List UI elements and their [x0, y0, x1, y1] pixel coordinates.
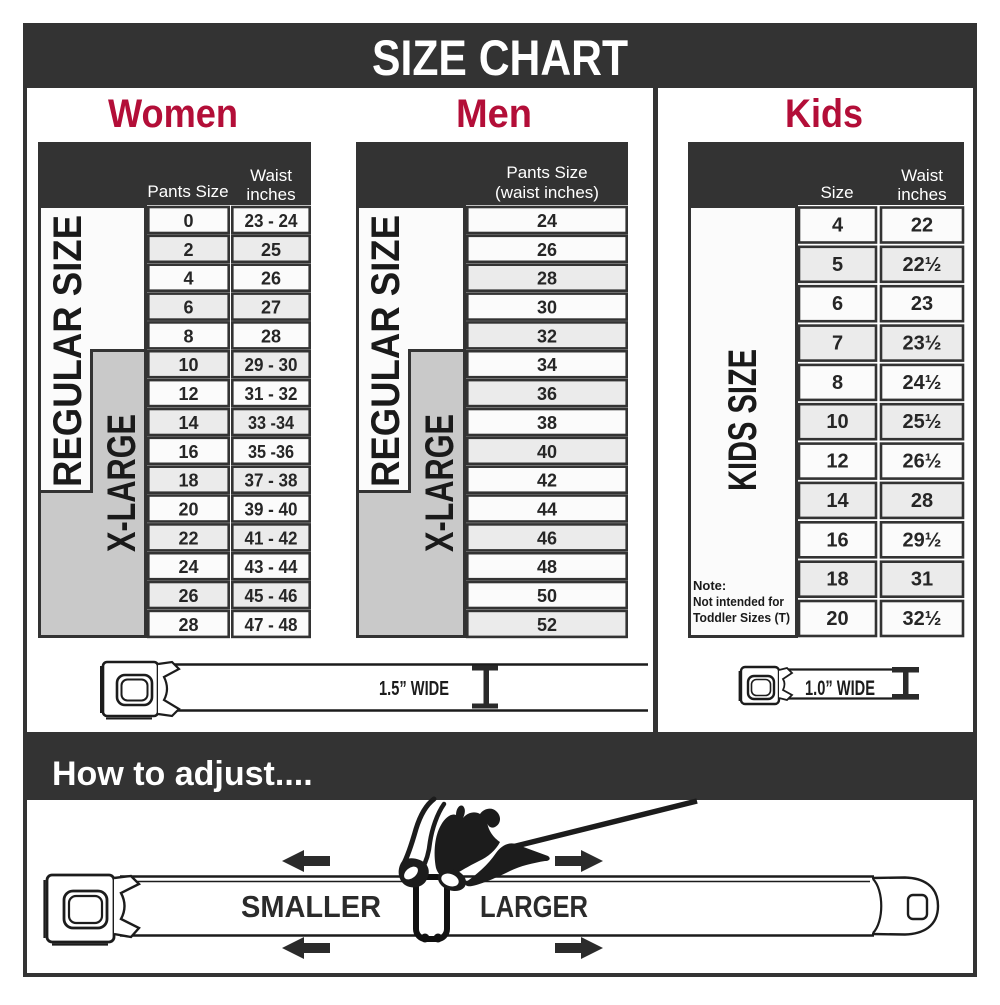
svg-text:5: 5 [832, 254, 843, 276]
svg-text:4: 4 [183, 269, 193, 289]
svg-text:42: 42 [537, 471, 557, 491]
svg-text:35 -36: 35 -36 [248, 442, 294, 462]
svg-text:16: 16 [826, 529, 848, 551]
svg-text:30: 30 [537, 298, 557, 318]
svg-text:44: 44 [537, 500, 557, 520]
svg-text:34: 34 [537, 355, 557, 375]
svg-text:10: 10 [178, 355, 198, 375]
svg-text:26: 26 [261, 269, 281, 289]
svg-text:Toddler Sizes (T): Toddler Sizes (T) [693, 610, 790, 625]
svg-text:Women: Women [108, 92, 238, 136]
svg-text:31 - 32: 31 - 32 [245, 384, 298, 404]
svg-text:1.5” WIDE: 1.5” WIDE [379, 678, 449, 700]
svg-text:22: 22 [911, 215, 933, 237]
svg-text:38: 38 [537, 413, 557, 433]
svg-text:1.0” WIDE: 1.0” WIDE [805, 677, 875, 700]
svg-text:6: 6 [183, 298, 193, 318]
svg-text:20: 20 [826, 608, 848, 630]
svg-text:23½: 23½ [903, 333, 942, 355]
svg-text:REGULAR SIZE: REGULAR SIZE [364, 215, 408, 487]
svg-text:48: 48 [537, 557, 557, 577]
svg-text:Pants Size: Pants Size [147, 182, 228, 201]
svg-text:8: 8 [183, 326, 193, 346]
svg-text:24: 24 [537, 211, 557, 231]
svg-text:SMALLER: SMALLER [241, 889, 381, 924]
svg-text:24: 24 [178, 557, 198, 577]
svg-text:47 - 48: 47 - 48 [245, 615, 298, 635]
svg-text:22: 22 [178, 528, 198, 548]
svg-text:How to adjust....: How to adjust.... [52, 755, 313, 793]
svg-text:8: 8 [832, 372, 843, 394]
svg-text:X-LARGE: X-LARGE [100, 414, 144, 552]
svg-text:20: 20 [178, 500, 198, 520]
svg-text:36: 36 [537, 384, 557, 404]
svg-text:14: 14 [178, 413, 198, 433]
svg-text:SIZE CHART: SIZE CHART [372, 30, 628, 86]
svg-text:18: 18 [826, 569, 848, 591]
svg-text:24½: 24½ [903, 372, 942, 394]
svg-text:50: 50 [537, 586, 557, 606]
svg-text:2: 2 [183, 240, 193, 260]
svg-text:26: 26 [537, 240, 557, 260]
svg-text:14: 14 [826, 490, 849, 512]
svg-text:27: 27 [261, 298, 281, 318]
svg-text:28: 28 [911, 490, 933, 512]
svg-text:Size: Size [820, 183, 853, 202]
svg-text:LARGER: LARGER [480, 889, 588, 924]
svg-text:inches: inches [246, 185, 295, 204]
svg-text:23: 23 [911, 293, 933, 315]
svg-text:22½: 22½ [903, 254, 942, 276]
svg-text:46: 46 [537, 528, 557, 548]
svg-text:29 - 30: 29 - 30 [245, 355, 298, 375]
svg-text:33 -34: 33 -34 [248, 413, 294, 433]
svg-text:Note:: Note: [693, 578, 726, 593]
svg-text:41 - 42: 41 - 42 [245, 528, 298, 548]
svg-text:Waist: Waist [250, 166, 292, 185]
svg-text:Men: Men [456, 92, 532, 136]
svg-text:7: 7 [832, 333, 843, 355]
svg-text:10: 10 [826, 411, 848, 433]
svg-text:6: 6 [832, 293, 843, 315]
svg-text:25: 25 [261, 240, 281, 260]
svg-text:16: 16 [178, 442, 198, 462]
svg-text:Not intended for: Not intended for [693, 594, 784, 609]
svg-text:28: 28 [261, 326, 281, 346]
svg-text:4: 4 [832, 215, 844, 237]
svg-text:31: 31 [911, 569, 933, 591]
svg-text:29½: 29½ [903, 529, 942, 551]
svg-text:37 - 38: 37 - 38 [245, 471, 298, 491]
svg-text:0: 0 [183, 211, 193, 231]
svg-text:40: 40 [537, 442, 557, 462]
svg-text:28: 28 [178, 615, 198, 635]
svg-text:12: 12 [178, 384, 198, 404]
svg-text:X-LARGE: X-LARGE [418, 414, 462, 552]
svg-text:Pants Size: Pants Size [506, 163, 587, 182]
svg-text:52: 52 [537, 615, 557, 635]
svg-text:Kids: Kids [785, 92, 863, 136]
svg-text:KIDS SIZE: KIDS SIZE [721, 349, 765, 491]
svg-text:45 - 46: 45 - 46 [245, 586, 298, 606]
svg-text:43 - 44: 43 - 44 [245, 557, 298, 577]
svg-text:26½: 26½ [903, 451, 942, 473]
svg-text:32½: 32½ [903, 608, 942, 630]
svg-text:23 - 24: 23 - 24 [245, 211, 298, 231]
svg-text:28: 28 [537, 269, 557, 289]
svg-text:18: 18 [178, 471, 198, 491]
svg-text:(waist inches): (waist inches) [495, 183, 599, 202]
svg-text:Waist: Waist [901, 166, 943, 185]
svg-text:25½: 25½ [903, 411, 942, 433]
svg-text:32: 32 [537, 326, 557, 346]
svg-text:12: 12 [826, 451, 848, 473]
svg-text:39 - 40: 39 - 40 [245, 500, 298, 520]
svg-text:inches: inches [897, 185, 946, 204]
svg-text:REGULAR SIZE: REGULAR SIZE [46, 215, 90, 487]
svg-text:26: 26 [178, 586, 198, 606]
